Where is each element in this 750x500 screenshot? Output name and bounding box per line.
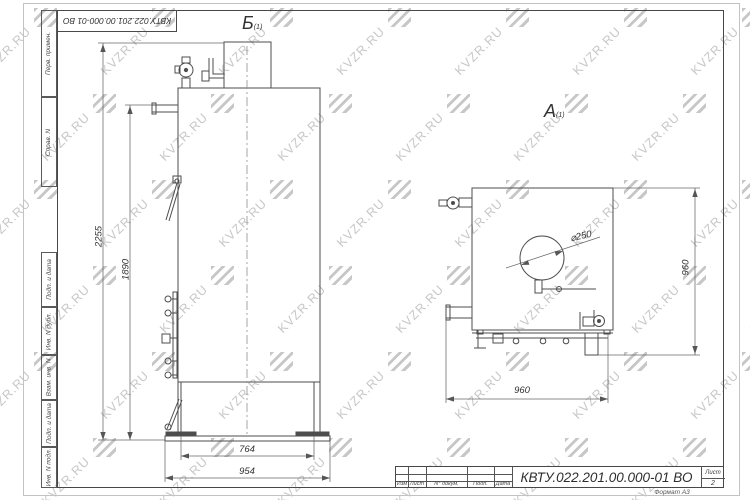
dim-height-total: 2255 [94,217,105,257]
top-drain-valve [580,310,605,329]
drawing-sheet: KVZR.RUKVZR.RUKVZR.RUKVZR.RUKVZR.RUKVZR.… [0,0,750,500]
dim-width-top: 960 [502,385,542,396]
door-hinges [162,292,177,378]
dim-height-to-pipe: 1890 [121,250,132,290]
upper-door-lever [166,176,181,221]
title-block: Изм Лист N° докум. Подп. Дата КВТУ.022.2… [395,466,724,488]
top-dimension-arrows [446,189,698,402]
front-view-label-sub: (1) [254,24,263,31]
top-side-pipe [446,305,472,320]
boiler-drawing-linework [0,0,750,500]
front-dimension-arrows [100,44,330,481]
sheet-number: 2 [701,478,725,488]
safety-valve [175,57,193,88]
front-view [152,42,330,441]
format-note: Формат А3 [632,489,712,496]
dim-width-door: 764 [227,444,267,455]
top-view [439,188,613,355]
front-view-letter: Б [242,13,254,33]
col-data: Дата [494,481,512,487]
top-view-letter: А [544,101,556,121]
col-podp: Подп. [467,481,494,487]
top-view-label: А(1) [544,101,565,122]
col-izm: Изм [396,481,408,487]
front-dimensions [98,43,330,482]
chimney [224,42,271,88]
boiler-body-front [178,88,320,436]
dim-depth: 960 [681,248,692,288]
document-designation: КВТУ.022.201.00.000-01 ВО [512,467,701,487]
lower-door-lever [165,399,182,430]
top-view-label-sub: (1) [556,112,565,119]
front-view-label: Б(1) [242,13,262,34]
base-plate [165,436,330,441]
top-valve [439,197,472,209]
top-dimensions [446,188,700,403]
foot-right [296,432,329,436]
sensor-pipe [202,58,224,81]
col-list: Лист [408,481,426,487]
side-pipe-stub [152,103,178,114]
col-dokum: N° докум. [426,481,467,487]
sheet-label: Лист [701,467,725,478]
top-flue-box [585,333,598,355]
boiler-body-top [472,188,613,330]
flue-opening [520,236,564,280]
dim-width-base: 954 [227,466,267,477]
foot-left [166,432,196,436]
title-block-row-line [396,474,512,475]
